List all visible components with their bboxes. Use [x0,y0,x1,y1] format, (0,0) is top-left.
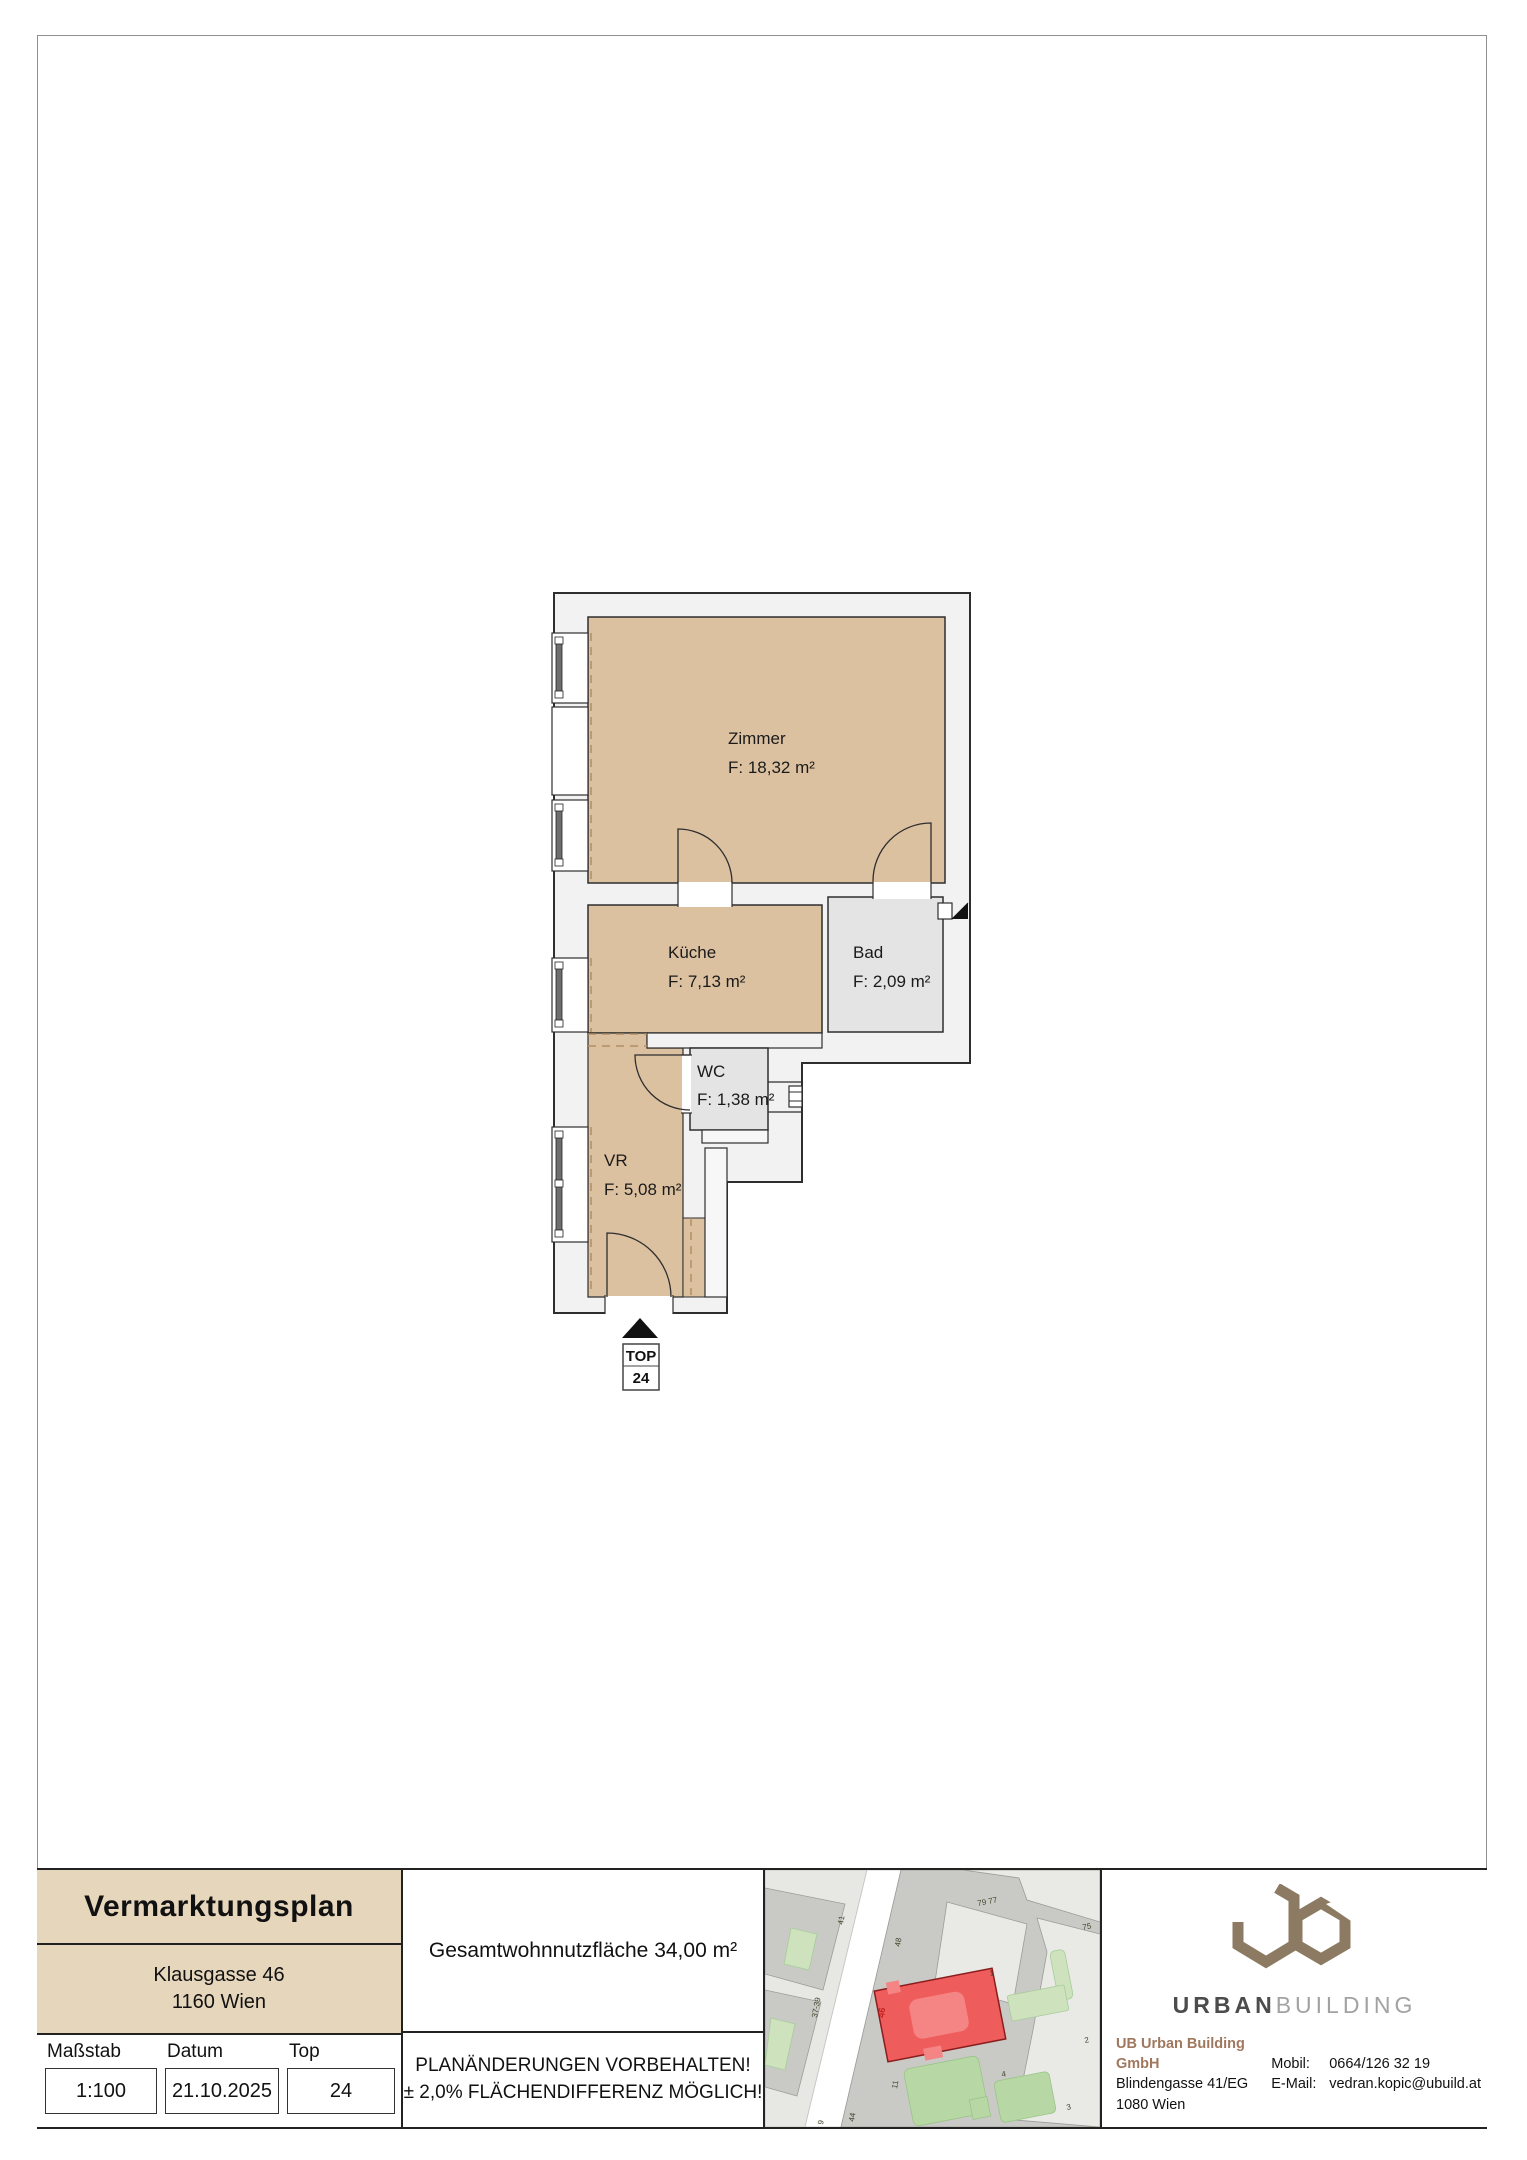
radiator-icon [556,808,562,863]
address-line1: Klausgasse 46 [153,1962,284,1989]
wc-step [702,1130,768,1143]
label-zimmer-area: F: 18,32 m² [728,758,815,777]
label-bad-area: F: 2,09 m² [853,972,931,991]
room-vr [588,1033,683,1297]
brand-logo [1102,1884,1487,1986]
company-street: Blindengasse 41/EG [1116,2074,1271,2094]
wordmark-urban: URBAN [1173,1992,1276,2018]
brand-cell: URBANBUILDING UB Urban Building GmbH Bli… [1100,1870,1487,2127]
company-name: UB Urban Building GmbH [1116,2034,1271,2075]
total-area: Gesamtwohnnutzfläche 34,00 m² [403,1870,763,2033]
mobile-number: 0664/126 32 19 [1329,2054,1430,2074]
title-block-col-left: Vermarktungsplan Klausgasse 46 1160 Wien… [37,1870,401,2127]
top-marker-line2: 24 [633,1370,650,1387]
project-address: Klausgasse 46 1160 Wien [37,1945,401,2035]
email-label: E-Mail: [1271,2074,1329,2094]
room-kueche [588,905,822,1033]
contact-block: UB Urban Building GmbH Blindengasse 41/E… [1116,2034,1481,2115]
company-city: 1080 Wien [1116,2095,1271,2115]
label-wc-area: F: 1,38 m² [697,1090,775,1109]
floor-plan-drawing: TOP 24 Zimmer F: 18,32 m² Küche F: 7,13 … [0,0,1527,1460]
field-top: Top 24 [287,2041,395,2114]
field-top-label: Top [287,2041,395,2063]
site-map-cell: 79 77 75 41 48 37-39 1 2 4 11 44 3 9 46 [765,1870,1100,2127]
radiator-icon [556,641,562,695]
brand-wordmark: URBANBUILDING [1102,1992,1487,2019]
room-vr-niche [683,1218,705,1297]
entrance-arrow-icon [622,1318,658,1338]
radiator-icon [556,966,562,1024]
room-wc [690,1048,768,1130]
map-highlight-number: 46 [876,2007,887,2018]
meta-fields: Maßstab 1:100 Datum 21.10.2025 Top 24 [37,2035,401,2127]
address-line2: 1160 Wien [153,1989,284,2016]
window-5 [552,1127,588,1242]
room-zimmer [588,617,945,883]
disclaimer-line2: ± 2,0% FLÄCHENDIFFERENZ MÖGLICH! [404,2080,763,2107]
label-bad: Bad [853,943,883,962]
label-kueche: Küche [668,943,716,962]
mobile-label: Mobil: [1271,2054,1329,2074]
wc-window-icon [789,1086,802,1107]
page-title: Vermarktungsplan [37,1870,401,1945]
label-vr-area: F: 5,08 m² [604,1180,682,1199]
field-massstab: Maßstab 1:100 [45,2041,157,2114]
company-contact: Mobil: 0664/126 32 19 E-Mail: vedran.kop… [1271,2034,1481,2115]
label-wc: WC [697,1062,725,1081]
site-map: 79 77 75 41 48 37-39 1 2 4 11 44 3 9 46 [765,1870,1100,2127]
label-zimmer: Zimmer [728,729,786,748]
top-marker-line1: TOP [626,1348,657,1365]
wordmark-building: BUILDING [1276,1992,1417,2018]
window-2 [552,707,588,795]
window-1 [552,633,588,703]
shaft [705,1148,727,1297]
window-3 [552,800,588,871]
field-datum: Datum 21.10.2025 [165,2041,279,2114]
email-address: vedran.kopic@ubuild.at [1329,2074,1481,2094]
disclaimer: PLANÄNDERUNGEN VORBEHALTEN! ± 2,0% FLÄCH… [403,2033,763,2127]
floor-plan-page: TOP 24 Zimmer F: 18,32 m² Küche F: 7,13 … [0,0,1527,2160]
entrance-marker: TOP 24 [622,1318,659,1390]
field-datum-value: 21.10.2025 [165,2068,279,2114]
window-4 [552,958,588,1032]
title-block: Vermarktungsplan Klausgasse 46 1160 Wien… [37,1868,1487,2129]
label-vr: VR [604,1151,628,1170]
urban-building-logo-icon [1220,1884,1370,1986]
field-datum-label: Datum [165,2041,279,2063]
room-bad [828,897,943,1032]
title-block-col-center: Gesamtwohnnutzfläche 34,00 m² PLANÄNDERU… [401,1870,765,2127]
company-address: UB Urban Building GmbH Blindengasse 41/E… [1116,2034,1271,2115]
label-kueche-area: F: 7,13 m² [668,972,746,991]
disclaimer-line1: PLANÄNDERUNGEN VORBEHALTEN! [404,2053,763,2080]
field-massstab-value: 1:100 [45,2068,157,2114]
field-massstab-label: Maßstab [45,2041,157,2063]
field-top-value: 24 [287,2068,395,2114]
wall-kueche-bottom [647,1033,822,1048]
